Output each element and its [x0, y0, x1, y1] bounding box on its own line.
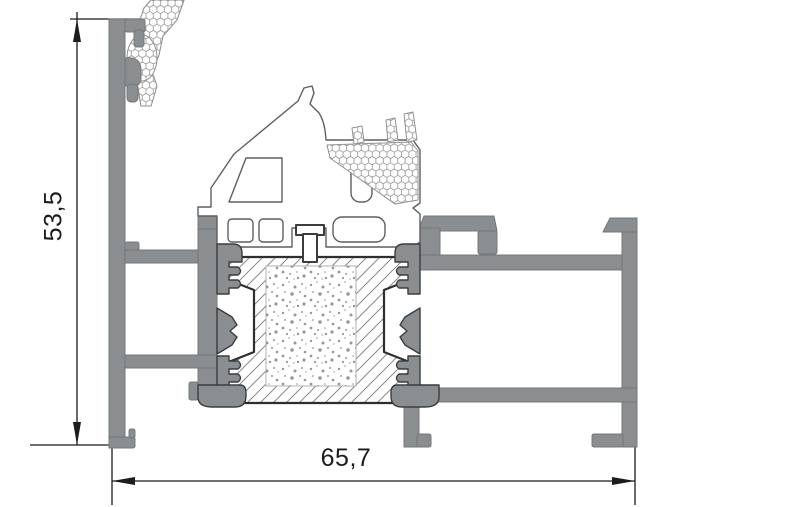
sash-chamber-small-1: [228, 219, 253, 242]
gasket-hook-lower: [125, 58, 141, 86]
thermal-break-insert: [226, 257, 412, 403]
left-frame-profile: [109, 19, 232, 448]
gasket-hook-foot: [127, 84, 138, 102]
frame-bottom-lip: [129, 429, 135, 438]
arrow-down-icon: [73, 422, 81, 445]
connector-stem: [303, 234, 317, 262]
clamp-top-fingers: [217, 244, 242, 294]
frame-left-foot: [417, 434, 431, 447]
foam-fin-1: [352, 126, 364, 144]
sash-chamber-small-2: [259, 219, 283, 242]
frame-vertical-wall: [109, 19, 125, 448]
profile-cross-section-drawing: 53,5 65,7: [0, 0, 800, 507]
width-dimension: 65,7: [112, 393, 635, 505]
insert-core-stipple: [266, 266, 356, 386]
technical-drawing-canvas: 53,5 65,7: [0, 0, 800, 507]
frame-right-foot: [592, 434, 623, 447]
frame-horizontal-web: [418, 255, 637, 270]
frame-bottom-foot: [109, 437, 135, 448]
sash-chamber-wide: [333, 217, 385, 242]
foam-fin-3: [404, 112, 417, 142]
arrow-right-icon: [612, 477, 635, 485]
clamp-center-point: [217, 308, 237, 354]
width-dimension-label: 65,7: [321, 444, 372, 472]
frame-column: [198, 218, 217, 400]
clamp-bottom-foot: [198, 385, 246, 407]
frame-right-wall: [622, 218, 637, 447]
frame-flange-hook: [478, 231, 497, 254]
right-frame-profile: [396, 216, 637, 447]
frame-lower-web: [125, 355, 217, 368]
sash-profile: [198, 86, 420, 247]
frame-top-flange-right: [603, 218, 637, 232]
height-dimension-label: 53,5: [40, 191, 68, 242]
arrow-up-icon: [73, 19, 81, 42]
frame-column-lip: [189, 382, 198, 400]
foam-fin-2: [386, 118, 398, 142]
gasket-hook-upper: [134, 30, 144, 47]
arrow-left-icon: [112, 477, 135, 485]
